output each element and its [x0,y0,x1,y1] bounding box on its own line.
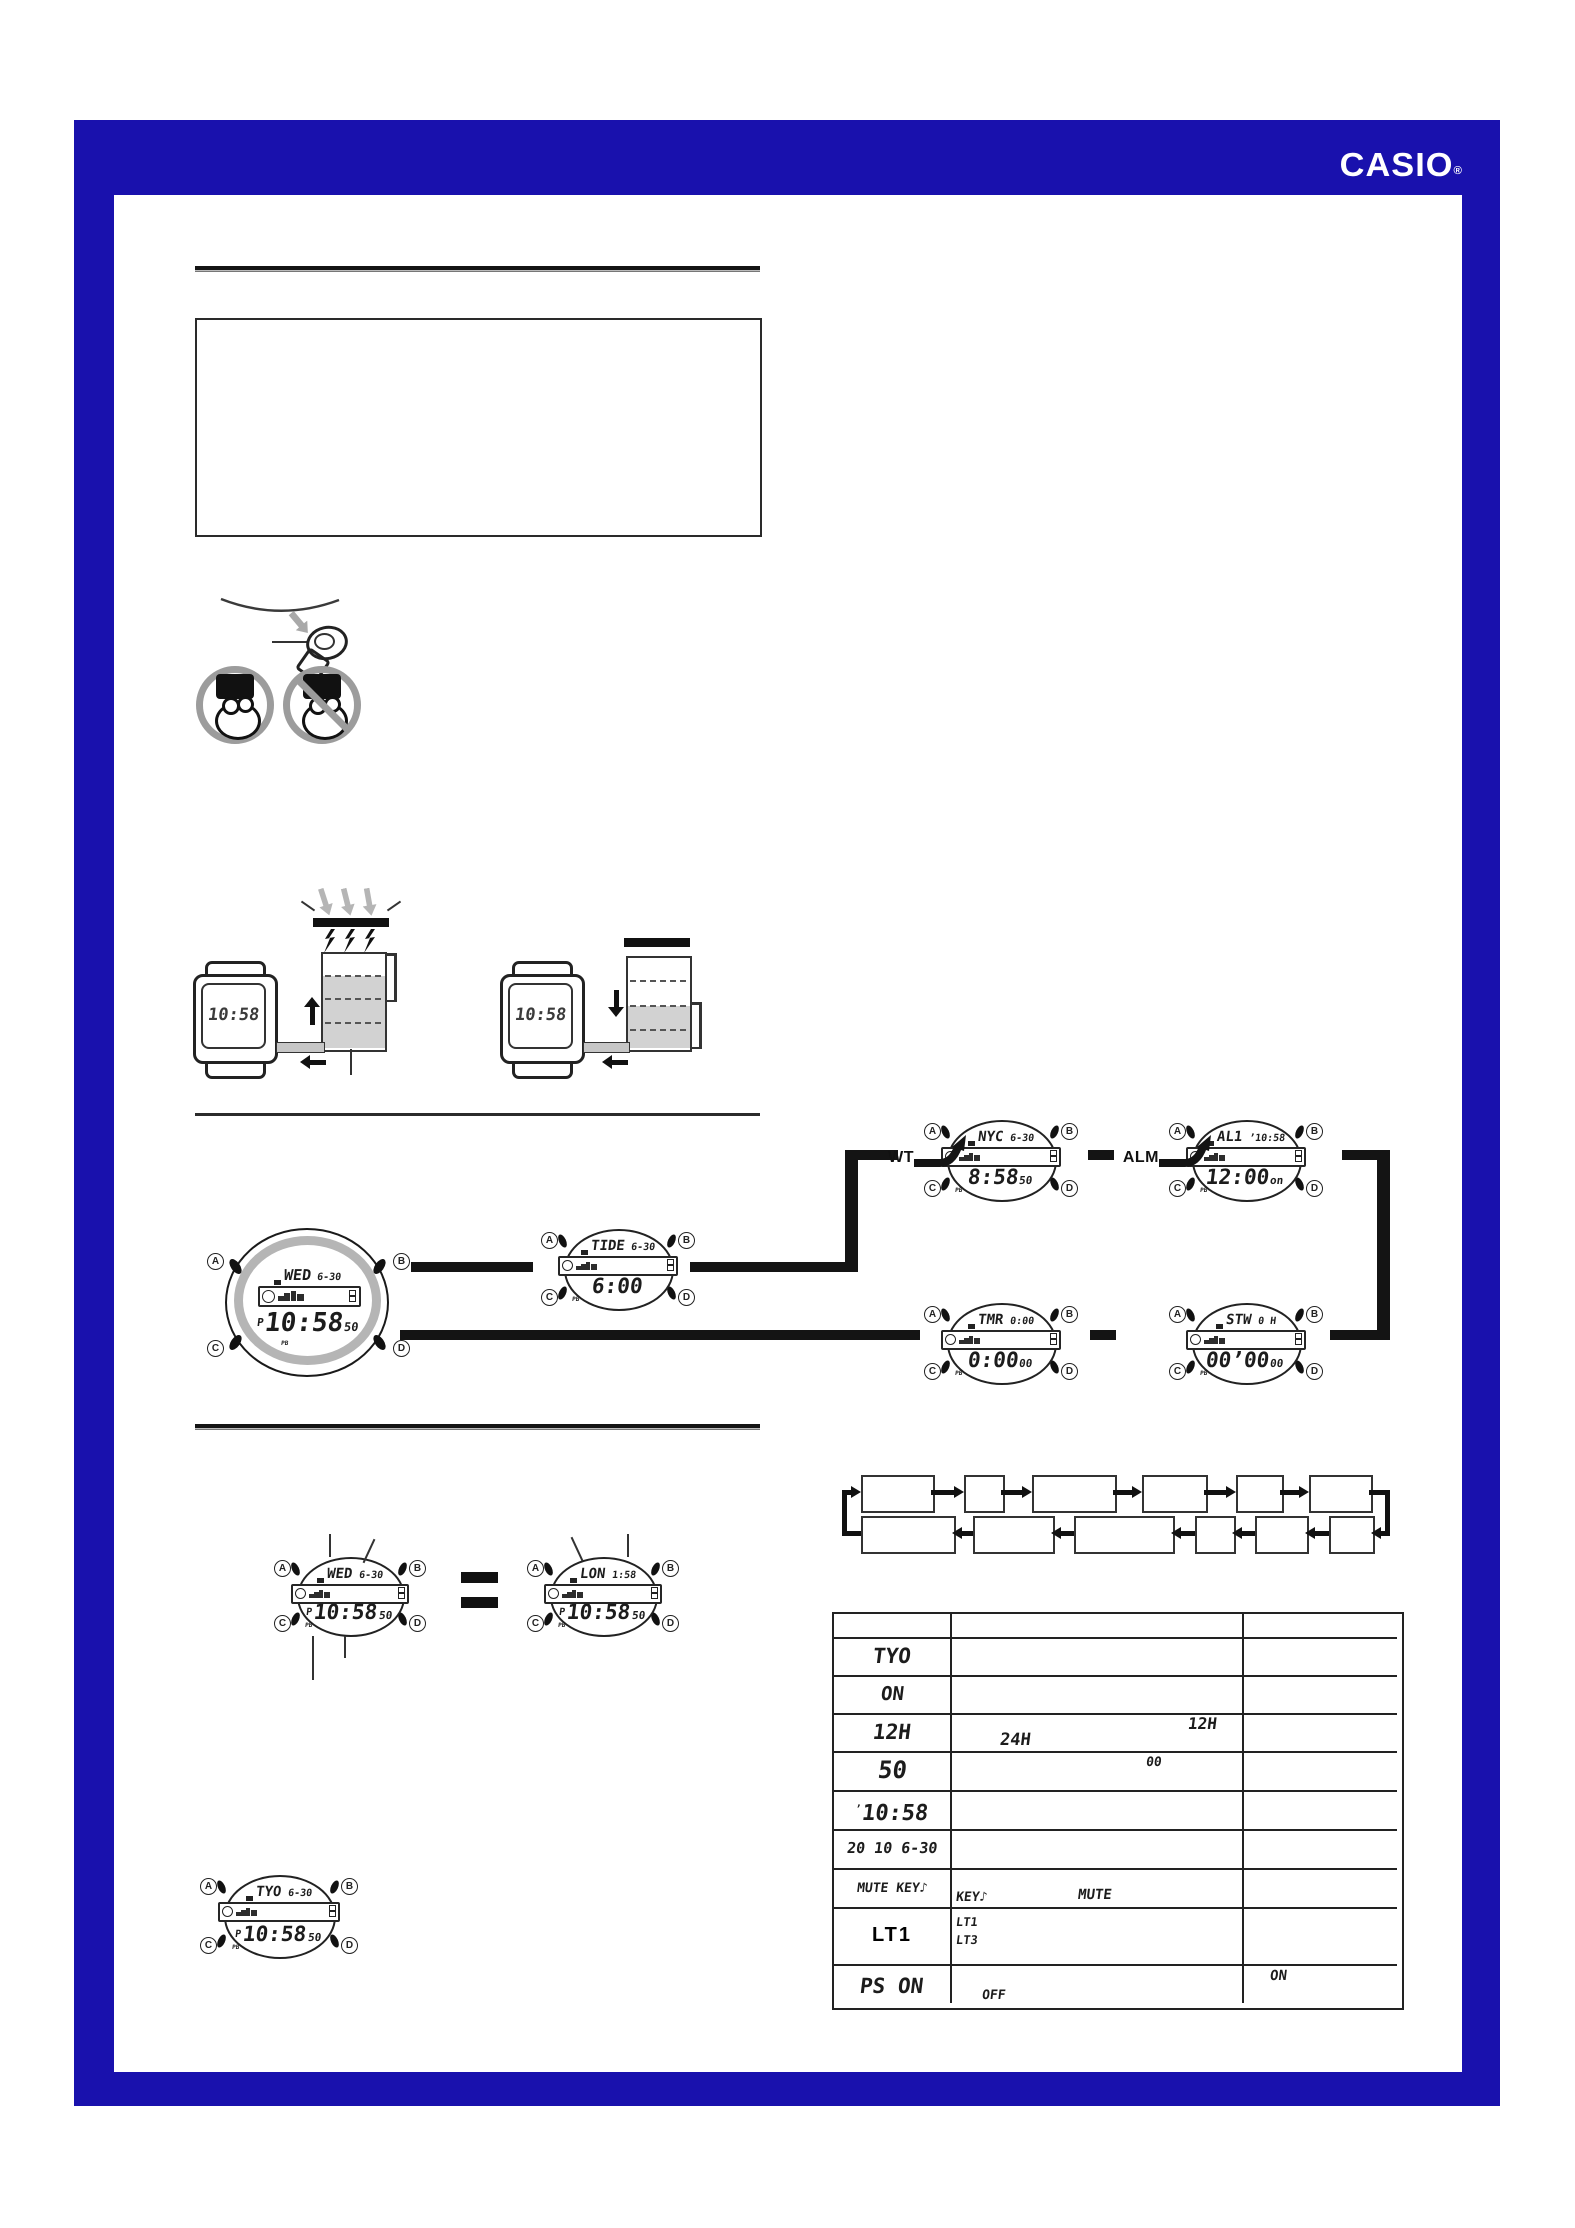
option-value: LT1 [955,1915,978,1929]
city-code: NYC [977,1129,1004,1145]
discharge-down-arrow [608,990,625,1018]
button-label-A: A [924,1306,941,1323]
button-mark-icon [1048,1124,1060,1140]
bracket-v [394,953,397,1002]
arrow-stem [309,1060,326,1065]
flow-arrow-stem [1001,1490,1024,1495]
moon-indicator-circle [1190,1334,1201,1345]
mode-connector-line [400,1330,920,1340]
time-value: 0:00 [966,1348,1020,1372]
graph-bar [1219,1338,1225,1344]
mode-connector-line [690,1262,858,1272]
arrow-stem [310,1006,315,1025]
flow-connector [842,1490,847,1536]
graph-bar [974,1155,980,1161]
top-right-value: 0 H [1257,1316,1276,1327]
table-cell-option: 24H [1000,1730,1031,1750]
charge-watch-illustration: 10:58 [500,961,585,1075]
time-value: 10:58 [566,1600,632,1624]
section-rule-3 [195,1424,760,1430]
manual-page: CASIO® 10:5810:58ABCDWED6-30P10:5850PBAB… [0,0,1575,2228]
bracket-t [692,1002,701,1005]
battery-level-chart [321,952,387,1052]
display-time-row: P10:5850 [196,1922,360,1946]
indicator-square [329,1911,336,1917]
flow-arrow-head [1232,1527,1242,1539]
watch-mode-home-tyo: ABCDTYO6-30P10:5850PB [196,1874,360,1956]
option-value: MUTE [1077,1887,1113,1903]
city-code: STW [1225,1312,1252,1328]
move-left-arrow [300,1055,326,1069]
button-label-C: C [207,1340,224,1357]
watch-mode-stw: ABCDSTW0 H00’0000PB [1165,1302,1325,1382]
graph-bar [324,1592,330,1598]
moon-indicator-circle [295,1588,306,1599]
moon-indicator-circle [945,1334,956,1345]
battery-dash-line [630,980,686,982]
signal-block-icon [968,1324,975,1329]
graph-bar [251,1910,257,1916]
table-cell-option: LT1 [956,1913,978,1931]
bracket-b [387,1000,396,1003]
flowchart-box-bottom-1 [861,1516,956,1554]
frame-bottom-band [74,2072,1500,2106]
top-right-value: 6-30 [1009,1133,1034,1144]
graph-bar [572,1590,576,1598]
top-right-value: 0:00 [1009,1316,1034,1327]
flowchart-box-bottom-4 [1195,1516,1236,1554]
flowchart-box-top-1 [861,1475,935,1513]
top-right-value: 6-30 [287,1888,312,1899]
signal-block-icon [1216,1324,1223,1329]
button-label-B: B [1306,1123,1323,1140]
table-cell-display: PS ON [834,1964,950,2008]
table-cell-value: MUTE KEY♪ [854,1869,929,1908]
arrow-head [602,1055,612,1069]
flowchart-box-bottom-2 [973,1516,1055,1554]
mode-connector-line [1330,1330,1390,1340]
flow-arrow-stem [1280,1490,1301,1495]
indicator-square [349,1296,356,1302]
flow-arrow-head [952,1527,962,1539]
button-mark-icon [542,1561,554,1577]
time-value: 10:58 [264,1308,346,1338]
watch-mode-tide: ABCDTIDE6-306:00PB [537,1228,697,1308]
casio-logo: CASIO® [1137,146,1463,186]
flow-arrow-head [1022,1486,1032,1498]
callout-line [312,1636,314,1680]
option-value: OFF [981,1988,1006,2003]
arrow-stem [611,1060,628,1065]
display-top-row: LON1:58 [558,1565,648,1579]
light-ray-arrow-icon [360,887,379,917]
flow-connector [1385,1490,1390,1536]
flow-arrow-stem [931,1490,956,1495]
registered-mark: ® [1454,165,1463,177]
panel-tick [301,901,315,912]
display-top-row: TIDE6-30 [572,1237,664,1251]
flow-arrow-head [1299,1486,1309,1498]
watch-module-icon [216,674,254,699]
flow-arrow-head [1171,1527,1181,1539]
table-cell-display: 20 10 6-30 [834,1829,950,1868]
bracket-b [692,1047,701,1050]
button-mark-icon [328,1879,340,1895]
mode-connector-line [411,1262,533,1272]
button-label-A: A [200,1878,217,1895]
option-value: ON [1269,1968,1288,1984]
table-cell-option: 00 [1146,1753,1162,1771]
time-value: 10:58 [242,1922,308,1946]
callout-line [350,1049,352,1075]
city-code: TIDE [590,1238,626,1254]
option-value: LT3 [955,1933,978,1947]
flowchart-box-top-2 [964,1475,1005,1513]
button-label-B: B [1306,1306,1323,1323]
section-rule-1 [195,266,760,272]
signal-block-icon [570,1578,577,1583]
move-left-arrow [602,1055,628,1069]
callout-line [329,1534,331,1557]
flow-arrow-stem [1059,1531,1074,1536]
top-right-value: 6-30 [358,1570,383,1581]
display-time-row: 6:00 [537,1274,697,1298]
table-cell-display: LT1 [834,1907,950,1964]
battery-fill [628,1006,690,1048]
battery-fill [323,976,385,1048]
option-value: KEY♪ [955,1890,988,1905]
flowchart-box-top-6 [1309,1475,1373,1513]
time-suffix: 50 [307,1931,322,1944]
flow-arrow-stem [1240,1531,1255,1536]
graph-bar [974,1338,980,1344]
button-label-B: B [393,1253,410,1270]
pb-indicator: PB [955,1370,976,1378]
graph-bar [577,1592,583,1598]
option-value: 24H [999,1730,1032,1750]
flow-arrow-stem [1204,1490,1228,1495]
pb-indicator: PB [1200,1370,1221,1378]
graph-bar [591,1264,597,1270]
button-mark-icon [1293,1307,1305,1323]
flow-arrow-head [1132,1486,1142,1498]
section-rule-2 [195,1113,760,1116]
top-right-value: ’10:58 [1248,1133,1285,1144]
battery-dash-line [630,1029,686,1031]
watch-mode-wt: ABCDNYC6-308:5850PBWT [920,1119,1080,1199]
graph-band [558,1256,678,1276]
charge-link-bar [276,1042,325,1053]
date-value: 6-30 [316,1272,341,1283]
display-time-row: P10:5850 [523,1600,681,1624]
callout-line [272,641,308,643]
flow-arrow-head [1051,1527,1061,1539]
table-col-line [1242,1614,1244,2003]
battery-dash-line [630,1005,686,1007]
flow-arrow-head [954,1486,964,1498]
moon-indicator-circle [262,1290,275,1303]
display-top-row: STW0 H [1200,1311,1292,1325]
button-label-A: A [1169,1306,1186,1323]
time-value: 6:00 [590,1274,644,1298]
indicator-square [398,1593,405,1599]
graph-bar [246,1908,250,1916]
table-cell-display: 12H [834,1713,950,1751]
flow-arrow-stem [1313,1531,1329,1536]
arrow-head [304,997,320,1007]
lcd-time: 10:58 [511,1005,571,1027]
time-value: 00’00 [1205,1348,1271,1372]
top-right-value: 1:58 [611,1570,636,1581]
time-value: 10:58 [313,1600,379,1624]
graph-band [218,1902,340,1922]
top-right-value: 6-30 [630,1242,655,1253]
prohibition-sign [283,666,361,744]
time-suffix: 50 [631,1609,646,1622]
button-mark-icon [289,1561,301,1577]
equals-bar [461,1597,498,1608]
pb-indicator: PB [572,1296,593,1304]
button-mark-icon [1293,1124,1305,1140]
flowchart-box-bottom-5 [1255,1516,1309,1554]
arrow-head [300,1055,310,1069]
indicator-square [1050,1339,1057,1345]
city-code: TMR [977,1312,1004,1328]
table-cell-display: 50 [834,1751,950,1790]
mode-connector-line [1090,1330,1116,1340]
table-cell-value: TYO [871,1637,914,1675]
table-cell-option: ON [1270,1967,1287,1985]
indicator-square [1295,1156,1302,1162]
flow-arrow-stem [1113,1490,1134,1495]
graph-bar [1214,1336,1218,1344]
signal-block-icon [274,1280,281,1285]
option-value: 12H [1187,1714,1218,1733]
signal-block-icon [581,1250,588,1255]
pm-indicator: P [235,1929,242,1940]
mode-label-wt: WT [856,1149,914,1169]
prohibition-sign [196,666,274,744]
table-cell-value: 10:58 [860,1794,931,1833]
time-value: 8:58 [966,1165,1020,1189]
charge-watch-illustration: 10:58 [193,961,278,1075]
graph-bar [297,1294,304,1301]
graph-bar [319,1590,323,1598]
table-cell-option: OFF [982,1986,1005,2004]
table-cell-value: ON [878,1675,906,1713]
equals-bar [461,1572,498,1583]
button-mark-icon [556,1233,568,1249]
city-code: WED [326,1566,353,1582]
pb-indicator: PB [305,1622,326,1630]
time-suffix: on [1270,1174,1285,1187]
watch-mode-timekeeping: ABCDWED6-30P10:5850PB [225,1228,390,1378]
signal-block-icon [317,1578,324,1583]
indicator-square [667,1265,674,1271]
mode-pointer-arrow [914,1135,972,1169]
watch-mode-tmr: ABCDTMR0:000:0000PB [920,1302,1080,1382]
flowchart-box-top-4 [1142,1475,1208,1513]
graph-bar [291,1291,296,1301]
mode-pointer-arrow [1159,1135,1217,1169]
table-cell-display: MUTE KEY♪ [834,1868,950,1907]
light-ray-arrow-icon [337,887,357,918]
lcd-time: 10:58 [204,1005,264,1027]
button-mark-icon [396,1561,408,1577]
flow-arrow-head [1305,1527,1315,1539]
button-mark-icon [215,1879,227,1895]
signal-block-icon [246,1896,253,1901]
flowchart-box-top-3 [1032,1475,1117,1513]
city-code: AL1 [1216,1129,1243,1145]
watch-mode-compare-left: ABCDWED6-30P10:5850PB [270,1556,428,1634]
day-code: WED [283,1266,312,1284]
dark-cover-bar [624,938,690,947]
pm-indicator: P [559,1607,566,1618]
moon-indicator-circle [562,1260,573,1271]
table-cell-option: 12H [1188,1714,1217,1734]
button-label-B: B [662,1560,679,1577]
flowchart-box-top-5 [1236,1475,1284,1513]
time-suffix: 50 [378,1609,393,1622]
moon-indicator-circle [548,1588,559,1599]
moon-indicator-circle [222,1906,233,1917]
flow-arrow-head [851,1486,861,1498]
button-label-D: D [393,1340,410,1357]
mode-label-alm: ALM [1101,1149,1159,1169]
display-top-row: WED6-30 [305,1565,395,1579]
pb-indicator: PB [558,1622,579,1630]
flowchart-box-bottom-3 [1074,1516,1175,1554]
button-label-B: B [1061,1123,1078,1140]
range-bracket [387,953,397,1002]
button-label-B: B [409,1560,426,1577]
graph-band [941,1330,1061,1350]
indicator-square [1050,1156,1057,1162]
button-label-B: B [1061,1306,1078,1323]
table-cell-value: 50 [875,1751,909,1790]
display-top-row: WED6-30 [259,1266,356,1281]
frame-right-bar [1462,120,1500,2106]
range-bracket [692,1002,702,1049]
watch-mode-alm: ABCDAL1’10:5812:00onPBALM [1165,1119,1325,1199]
display-time-row: P10:5850 [225,1308,390,1336]
display-time-row: 0:0000 [920,1348,1080,1372]
flowchart-box-bottom-6 [1329,1516,1375,1554]
time-suffix: 50 [1018,1174,1033,1187]
notice-box [195,318,762,537]
button-mark-icon [1184,1307,1196,1323]
hand-knuckle [237,696,254,713]
flow-arrow-head [1371,1527,1381,1539]
light-ray-arrow-icon [314,887,336,918]
table-cell-value: LT1 [834,1907,950,1964]
callout-line [627,1534,629,1557]
battery-dash-line [325,998,381,1000]
bracket-v [699,1002,702,1049]
flow-arrow-head [1226,1486,1236,1498]
display-time-row: 00’0000 [1165,1348,1325,1372]
pb-indicator: PB [955,1187,976,1195]
lightning-bolts-icon [322,929,382,954]
button-mark-icon [1048,1307,1060,1323]
button-label-B: B [341,1878,358,1895]
table-cell-value: 20 10 6-30 [844,1829,939,1868]
battery-dash-line [325,1022,381,1024]
table-col-line [950,1614,952,2003]
button-label-A: A [274,1560,291,1577]
button-mark-icon [939,1307,951,1323]
table-cell-display: TYO [834,1637,950,1675]
arrow-head [608,1007,624,1017]
charge-link-bar [583,1042,630,1053]
display-top-row: TMR0:00 [955,1311,1047,1325]
graph-bar [586,1262,590,1270]
city-code: TYO [255,1884,282,1900]
charge-up-arrow [304,997,321,1025]
frame-left-bar [74,120,114,2106]
indicator-square [1295,1339,1302,1345]
graph-bar [1219,1155,1225,1161]
callout-line [344,1636,346,1658]
table-cell-display: ON [834,1675,950,1713]
settings-table: TYOON12H24H12H5000’10:5820 10 6-30MUTE K… [832,1612,1404,2010]
button-mark-icon [649,1561,661,1577]
bracket-t [387,953,396,956]
table-cell-display: ’10:58 [834,1790,950,1829]
table-cell-option: LT3 [956,1931,978,1949]
table-cell-value: PS ON [858,1964,927,2008]
flow-arrow-stem [1179,1531,1195,1536]
mode-connector-line [1377,1150,1390,1340]
solar-panel-bar [313,918,389,927]
table-cell-value: 12H [871,1713,914,1751]
time-suffix: 50 [343,1320,359,1334]
time-suffix: 00 [1270,1357,1285,1370]
table-cell-option: MUTE [1078,1886,1112,1904]
panel-tick [387,901,401,912]
city-code: LON [579,1566,606,1582]
pb-indicator: PB [232,1944,253,1952]
watch-dial [314,633,335,650]
indicator-square [651,1593,658,1599]
display-top-row: TYO6-30 [232,1883,326,1897]
pm-indicator: P [306,1607,313,1618]
graph-bar [284,1293,290,1301]
pb-indicator: PB [281,1340,302,1348]
graph-bar [969,1336,973,1344]
graph-band [258,1286,361,1307]
display-time-row: P10:5850 [270,1600,428,1624]
option-value: 00 [1145,1755,1162,1770]
button-label-B: B [678,1232,695,1249]
pm-indicator: P [256,1316,264,1329]
battery-level-chart [626,956,692,1052]
watch-mode-compare-right: ABCDLON1:58P10:5850PB [523,1556,681,1634]
graph-band [1186,1330,1306,1350]
pb-indicator: PB [1200,1187,1221,1195]
button-mark-icon [665,1233,677,1249]
time-suffix: 00 [1018,1357,1033,1370]
button-label-A: A [541,1232,558,1249]
table-cell-option: KEY♪ [956,1888,987,1906]
button-label-A: A [207,1253,224,1270]
battery-dash-line [325,975,381,977]
button-label-A: A [527,1560,544,1577]
